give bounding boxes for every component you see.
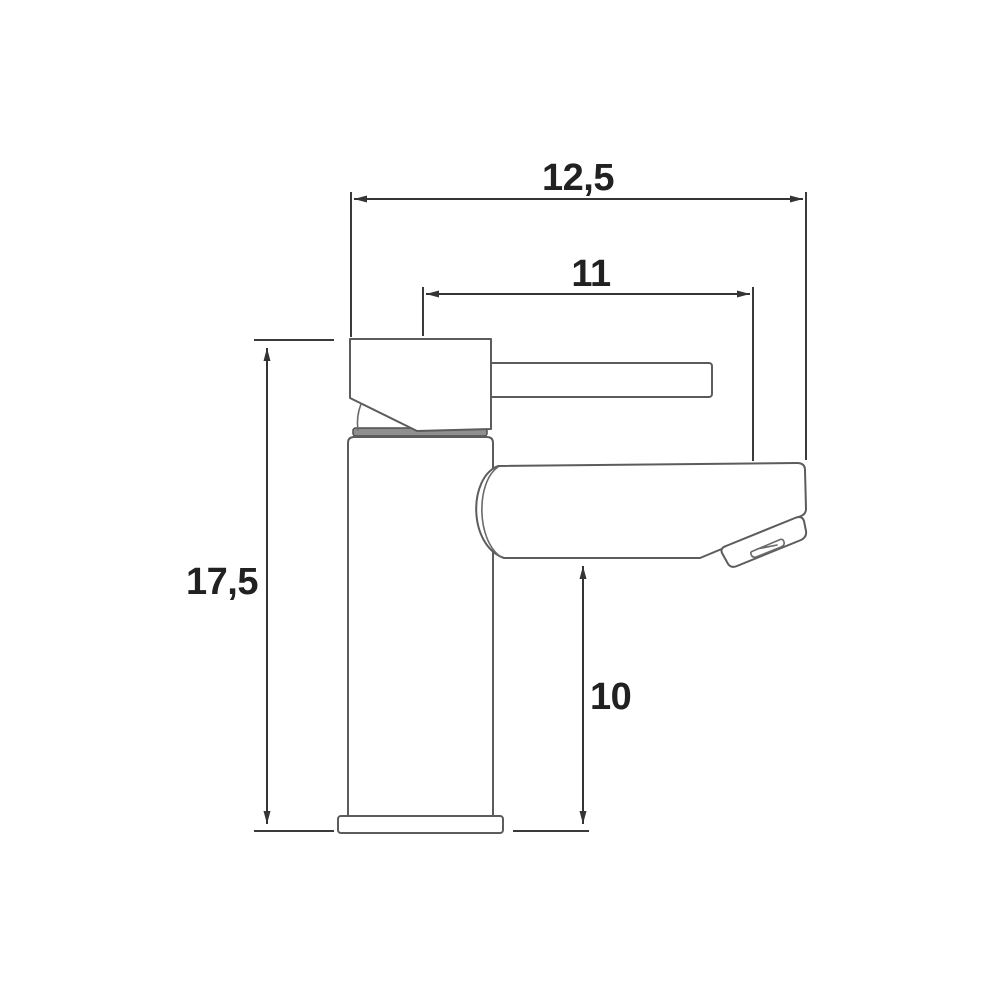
dim-label-spout-reach: 11 — [571, 253, 611, 295]
drawing-canvas: 12,5 11 17,5 10 — [0, 0, 1000, 1000]
dim-overall-height: 17,5 — [186, 340, 334, 831]
handle-pivot-line — [357, 404, 361, 430]
dim-label-overall-width: 12,5 — [542, 157, 614, 199]
faucet-dimension-drawing: 12,5 11 17,5 10 — [0, 0, 1000, 1000]
base-flange — [338, 816, 503, 833]
body-column — [348, 437, 493, 816]
dim-label-overall-height: 17,5 — [186, 561, 258, 603]
dim-spout-height: 10 — [513, 566, 631, 831]
handle-lever-arm — [490, 363, 712, 397]
handle-head-block — [350, 339, 491, 431]
dim-label-spout-height: 10 — [590, 676, 631, 718]
faucet-outline — [338, 339, 806, 833]
